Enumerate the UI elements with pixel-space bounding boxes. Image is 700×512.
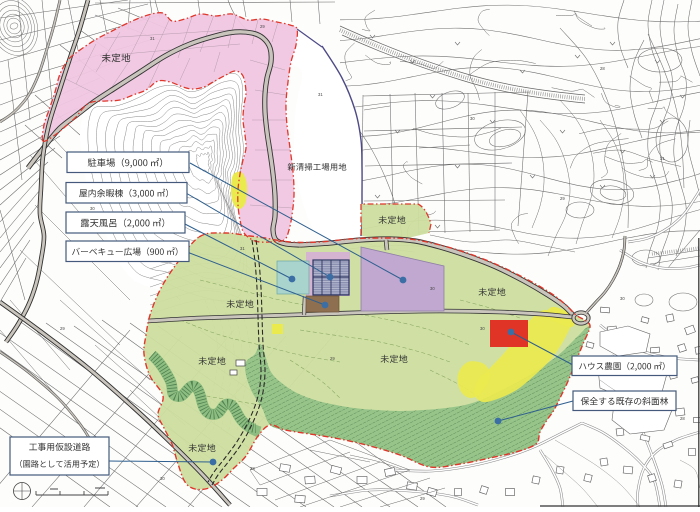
svg-text:28: 28	[600, 66, 605, 71]
svg-text:29: 29	[420, 496, 425, 501]
svg-text:30: 30	[160, 476, 165, 481]
svg-text:29: 29	[560, 196, 565, 201]
svg-text:30: 30	[90, 206, 95, 211]
svg-text:30: 30	[430, 286, 435, 291]
svg-text:29: 29	[330, 356, 335, 361]
svg-text:31: 31	[150, 36, 155, 41]
svg-text:29: 29	[60, 326, 65, 331]
svg-text:28: 28	[680, 416, 685, 421]
svg-text:30: 30	[470, 116, 475, 121]
svg-text:30: 30	[620, 296, 625, 301]
svg-text:28: 28	[250, 466, 255, 471]
svg-text:30: 30	[480, 326, 485, 331]
svg-text:29: 29	[260, 24, 265, 29]
svg-text:31: 31	[318, 92, 323, 97]
svg-text:31: 31	[660, 156, 665, 161]
svg-text:31: 31	[240, 246, 245, 251]
